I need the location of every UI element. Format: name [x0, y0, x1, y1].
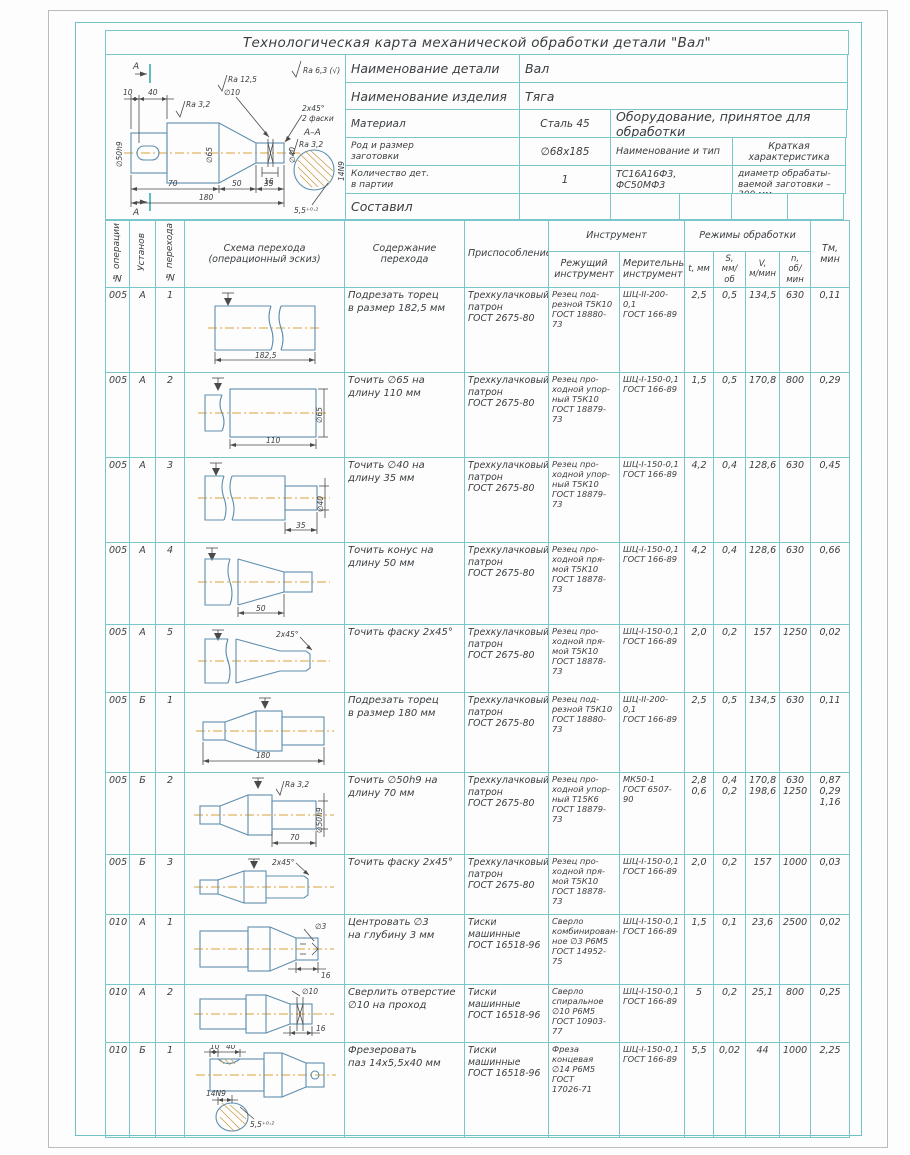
setup-cell: А	[130, 543, 156, 625]
part-drawing: А А 10 40	[105, 55, 345, 220]
setup-cell: А	[130, 458, 156, 543]
op-cell: 005	[106, 773, 130, 855]
t-cell: 5,5	[685, 1043, 714, 1138]
t-cell: 2,8 0,6	[685, 773, 714, 855]
qty-label: Количество дет. в партии	[345, 166, 520, 194]
s-cell: 0,1	[714, 915, 746, 985]
setup-cell: А	[130, 985, 156, 1043]
dim-35: 35	[264, 179, 274, 188]
roughness-ra32: Ra 3,2	[186, 100, 210, 109]
blank-label: Род и размер заготовки	[345, 138, 520, 166]
detail-name-label: Наименование детали	[345, 55, 520, 83]
process-row-6: 005 Б 1 180	[106, 693, 850, 773]
header-t: t, мм	[685, 251, 714, 287]
v-cell: 44	[746, 1043, 780, 1138]
product-name-label: Наименование изделия	[345, 83, 520, 110]
sketch-cell: 110 ∅65	[185, 373, 345, 458]
measuring-tool-cell: ШЦ-I-150-0,1 ГОСТ 166-89	[620, 373, 685, 458]
v-cell: 157	[746, 625, 780, 693]
op-cell: 005	[106, 458, 130, 543]
material-label: Материал	[345, 110, 520, 138]
t-cell: 2,5	[685, 693, 714, 773]
cutting-tool-cell: Резец под- резной Т5К10 ГОСТ 18880- 73	[549, 693, 620, 773]
process-row-8: 005 Б 3 2х45° Точить фаску 2х45°	[106, 855, 850, 915]
n-cell: 630	[780, 693, 811, 773]
sketch-dim: 16	[321, 971, 331, 980]
sketch-cell: 50	[185, 543, 345, 625]
cutting-tool-cell: Резец под- резной Т5К10 ГОСТ 18880- 73	[549, 288, 620, 373]
header-n: n, об/мин	[780, 251, 811, 287]
detail-name-value: Вал	[519, 55, 848, 83]
measuring-tool-cell: МК50-1 ГОСТ 6507-90	[620, 773, 685, 855]
content-cell: Точить ∅40 на длину 35 мм	[345, 458, 465, 543]
process-row-4: 005 А 4 50	[106, 543, 850, 625]
step-cell: 3	[156, 458, 185, 543]
sketch-slot-width: 14N9	[206, 1089, 226, 1098]
cutting-tool-cell: Резец про- ходной упор- ный Т5К10 ГОСТ 1…	[549, 373, 620, 458]
v-cell: 134,5	[746, 693, 780, 773]
sketch-cell: ∅3 16	[185, 915, 345, 985]
tm-cell: 0,66	[811, 543, 850, 625]
n-cell: 630	[780, 288, 811, 373]
tm-cell: 0,11	[811, 693, 850, 773]
author-empty-4	[731, 194, 788, 220]
cutting-tool-cell: Резец про- ходной пря- мой Т5К10 ГОСТ 18…	[549, 543, 620, 625]
sketch-dim: 70	[290, 833, 300, 842]
step-cell: 2	[156, 985, 185, 1043]
dia-65: ∅65	[205, 147, 214, 163]
v-cell: 157	[746, 855, 780, 915]
s-cell: 0,02	[714, 1043, 746, 1138]
setup-cell: Б	[130, 693, 156, 773]
tm-cell: 0,02	[811, 625, 850, 693]
tm-cell: 0,02	[811, 915, 850, 985]
tm-cell: 0,87 0,29 1,16	[811, 773, 850, 855]
content-cell: Центровать ∅3 на глубину 3 мм	[345, 915, 465, 985]
op-cell: 005	[106, 543, 130, 625]
t-cell: 2,0	[685, 625, 714, 693]
step-cell: 1	[156, 693, 185, 773]
fixture-cell: Тиски машинные ГОСТ 16518-96	[465, 915, 549, 985]
header-fixture: Приспособление	[465, 221, 549, 288]
header-sketch: Схема перехода (операционный эскиз)	[185, 221, 345, 288]
dia-50h9: ∅50h9	[115, 141, 124, 167]
t-cell: 2,5	[685, 288, 714, 373]
sketch-dim-a: 10	[210, 1045, 220, 1051]
step-cell: 4	[156, 543, 185, 625]
process-row-11: 010 Б 1 1	[106, 1043, 850, 1138]
header-measuring-tool: Мерительный инструмент	[620, 251, 685, 287]
step-cell: 1	[156, 288, 185, 373]
measuring-tool-cell: ШЦ-I-150-0,1 ГОСТ 166-89	[620, 543, 685, 625]
header-tm: Тм, мин	[811, 221, 850, 288]
equipment-header: Оборудование, принятое для обработки	[610, 110, 847, 138]
header-content: Содержание перехода	[345, 221, 465, 288]
s-cell: 0,2	[714, 855, 746, 915]
tm-cell: 2,25	[811, 1043, 850, 1138]
process-table: № операции Установ № перехода Схема пере…	[105, 220, 850, 1138]
sketch-cell: 182,5	[185, 288, 345, 373]
roughness-ra63: Ra 6,3 (√)	[303, 66, 340, 75]
process-row-1: 005 А 1 182,5	[106, 288, 850, 373]
step-cell: 2	[156, 773, 185, 855]
op-cell: 010	[106, 915, 130, 985]
fixture-cell: Тиски машинные ГОСТ 16518-96	[465, 1043, 549, 1138]
fixture-cell: Трехкулачковый патрон ГОСТ 2675-80	[465, 625, 549, 693]
machines-value: ТС16А16Ф3, ФС50МФ3	[610, 166, 733, 194]
tm-cell: 0,03	[811, 855, 850, 915]
s-cell: 0,4 0,2	[714, 773, 746, 855]
page-title: Технологическая карта механической обраб…	[105, 30, 849, 55]
t-cell: 5	[685, 985, 714, 1043]
n-cell: 1000	[780, 855, 811, 915]
chamfer-label: 2х45°	[302, 104, 325, 113]
sketch-dim: 16	[316, 1024, 326, 1033]
hole-dia-label: ∅10	[224, 88, 240, 97]
sketch-cell: ∅10 16	[185, 985, 345, 1043]
fixture-cell: Трехкулачковый патрон ГОСТ 2675-80	[465, 458, 549, 543]
t-cell: 4,2	[685, 543, 714, 625]
author-empty-3	[679, 194, 732, 220]
author-label: Составил	[345, 194, 520, 220]
tm-cell: 0,11	[811, 288, 850, 373]
header-s: S, мм/об	[714, 251, 746, 287]
header-cutting-tool: Режущий инструмент	[549, 251, 620, 287]
content-cell: Подрезать торец в размер 182,5 мм	[345, 288, 465, 373]
process-card-page: Технологическая карта механической обраб…	[0, 0, 910, 1155]
s-cell: 0,5	[714, 693, 746, 773]
v-cell: 170,8 198,6	[746, 773, 780, 855]
sketch-cell: 2х45°	[185, 625, 345, 693]
fixture-cell: Трехкулачковый патрон ГОСТ 2675-80	[465, 543, 549, 625]
op-cell: 005	[106, 373, 130, 458]
dim-70: 70	[168, 179, 178, 188]
v-cell: 23,6	[746, 915, 780, 985]
measuring-tool-cell: ШЦ-II-200-0,1 ГОСТ 166-89	[620, 288, 685, 373]
setup-cell: Б	[130, 773, 156, 855]
process-row-2: 005 А 2 110	[106, 373, 850, 458]
fixture-cell: Трехкулачковый патрон ГОСТ 2675-80	[465, 773, 549, 855]
roughness-ra125: Ra 12,5	[228, 75, 257, 84]
content-cell: Точить ∅65 на длину 110 мм	[345, 373, 465, 458]
blank-value: ∅68х185	[519, 138, 611, 166]
fixture-cell: Тиски машинные ГОСТ 16518-96	[465, 985, 549, 1043]
measuring-tool-cell: ШЦ-I-150-0,1 ГОСТ 166-89	[620, 855, 685, 915]
dim-180: 180	[199, 193, 214, 202]
setup-cell: А	[130, 915, 156, 985]
cutting-tool-cell: Фреза концевая ∅14 Р6М5 ГОСТ 17026-71	[549, 1043, 620, 1138]
n-cell: 1250	[780, 625, 811, 693]
sketch-dia: ∅65	[315, 407, 324, 423]
header-tool: Инструмент	[549, 221, 685, 252]
step-cell: 3	[156, 855, 185, 915]
process-row-10: 010 А 2 ∅10	[106, 985, 850, 1043]
op-cell: 005	[106, 693, 130, 773]
measuring-tool-cell: ШЦ-I-150-0,1 ГОСТ 166-89	[620, 915, 685, 985]
step-cell: 1	[156, 1043, 185, 1138]
cutting-tool-cell: Резец про- ходной упор- ный Т5К10 ГОСТ 1…	[549, 458, 620, 543]
dim-40: 40	[148, 88, 158, 97]
sketch-dia: ∅3	[315, 922, 327, 931]
measuring-tool-cell: ШЦ-II-200-0,1 ГОСТ 166-89	[620, 693, 685, 773]
type-label: Наименование и тип	[610, 138, 733, 166]
tm-cell: 0,29	[811, 373, 850, 458]
s-cell: 0,2	[714, 985, 746, 1043]
material-value: Сталь 45	[519, 110, 611, 138]
sketch-dia: ∅40	[316, 496, 325, 512]
fixture-cell: Трехкулачковый патрон ГОСТ 2675-80	[465, 693, 549, 773]
measuring-tool-cell: ШЦ-I-150-0,1 ГОСТ 166-89	[620, 458, 685, 543]
fixture-cell: Трехкулачковый патрон ГОСТ 2675-80	[465, 855, 549, 915]
info-table: Наименование детали Вал Наименование изд…	[345, 55, 849, 220]
n-cell: 630	[780, 458, 811, 543]
header-modes: Режимы обработки	[685, 221, 811, 252]
tm-cell: 0,45	[811, 458, 850, 543]
cutting-tool-cell: Сверло комбинирован- ное ∅3 Р6М5 ГОСТ 14…	[549, 915, 620, 985]
sketch-dim: 50	[256, 604, 266, 613]
n-cell: 2500	[780, 915, 811, 985]
op-cell: 005	[106, 855, 130, 915]
header-step: № перехода	[156, 221, 185, 288]
sketch-ra: Ra 3,2	[285, 780, 309, 789]
author-empty-5	[787, 194, 844, 220]
n-cell: 800	[780, 373, 811, 458]
setup-cell: Б	[130, 855, 156, 915]
v-cell: 128,6	[746, 458, 780, 543]
sketch-cell: 180	[185, 693, 345, 773]
measuring-tool-cell: ШЦ-I-150-0,1 ГОСТ 166-89	[620, 1043, 685, 1138]
process-row-7: 005 Б 2 Ra 3,2 ∅50h9	[106, 773, 850, 855]
op-cell: 010	[106, 985, 130, 1043]
section-mark-a-bottom: А	[132, 208, 139, 218]
sketch-cell: 10 40 14N9 5,5⁺⁰·²	[185, 1043, 345, 1138]
author-empty-1	[519, 194, 611, 220]
setup-cell: Б	[130, 1043, 156, 1138]
op-cell: 010	[106, 1043, 130, 1138]
v-cell: 170,8	[746, 373, 780, 458]
t-cell: 4,2	[685, 458, 714, 543]
n-cell: 630 1250	[780, 773, 811, 855]
process-row-9: 010 А 1 ∅3	[106, 915, 850, 985]
dim-50: 50	[232, 179, 242, 188]
content-cell: Подрезать торец в размер 180 мм	[345, 693, 465, 773]
content-cell: Точить ∅50h9 на длину 70 мм	[345, 773, 465, 855]
fixture-cell: Трехкулачковый патрон ГОСТ 2675-80	[465, 373, 549, 458]
v-cell: 128,6	[746, 543, 780, 625]
t-cell: 2,0	[685, 855, 714, 915]
header-v: V, м/мин	[746, 251, 780, 287]
header-setup: Установ	[130, 221, 156, 288]
sketch-cell: 2х45°	[185, 855, 345, 915]
sketch-dim: 110	[266, 436, 281, 445]
fixture-cell: Трехкулачковый патрон ГОСТ 2675-80	[465, 288, 549, 373]
char-label: Краткая характеристика	[732, 138, 846, 166]
product-name-value: Тяга	[519, 83, 848, 110]
step-cell: 1	[156, 915, 185, 985]
s-cell: 0,5	[714, 288, 746, 373]
slot-depth-label: 5,5⁺⁰·²	[294, 206, 318, 215]
measuring-tool-cell: ШЦ-I-150-0,1 ГОСТ 166-89	[620, 625, 685, 693]
sketch-dim: 180	[256, 751, 271, 760]
sketch-cell: 35 ∅40	[185, 458, 345, 543]
measuring-tool-cell: ШЦ-I-150-0,1 ГОСТ 166-89	[620, 985, 685, 1043]
content-cell: Фрезеровать паз 14х5,5х40 мм	[345, 1043, 465, 1138]
setup-cell: А	[130, 373, 156, 458]
content-cell: Точить фаску 2х45°	[345, 855, 465, 915]
header-op: № операции	[106, 221, 130, 288]
s-cell: 0,4	[714, 458, 746, 543]
cutting-tool-cell: Резец про- ходной упор- ный Т15К6 ГОСТ 1…	[549, 773, 620, 855]
sketch-dim: 182,5	[255, 351, 277, 360]
step-cell: 5	[156, 625, 185, 693]
content-cell: Точить конус на длину 50 мм	[345, 543, 465, 625]
s-cell: 0,2	[714, 625, 746, 693]
v-cell: 25,1	[746, 985, 780, 1043]
content-cell: Точить фаску 2х45°	[345, 625, 465, 693]
cutting-tool-cell: Резец про- ходной пря- мой Т5К10 ГОСТ 18…	[549, 855, 620, 915]
step-cell: 2	[156, 373, 185, 458]
t-cell: 1,5	[685, 915, 714, 985]
section-mark-a-top: А	[132, 62, 139, 72]
roughness-aa-ra32: Ra 3,2	[299, 140, 323, 149]
sketch-dim-b: 40	[226, 1045, 236, 1051]
section-aa-label: А–А	[303, 128, 321, 138]
characteristic-value: Наибольший диаметр обрабаты- ваемой заго…	[732, 166, 846, 194]
n-cell: 1000	[780, 1043, 811, 1138]
sketch-slot-depth: 5,5⁺⁰·²	[250, 1120, 274, 1129]
cutting-tool-cell: Резец про- ходной пря- мой Т5К10 ГОСТ 18…	[549, 625, 620, 693]
chamfer-count-label: 2 фаски	[302, 114, 334, 123]
sketch-dim: 35	[296, 521, 306, 530]
dim-10: 10	[123, 88, 133, 97]
sketch-dia: ∅50h9	[315, 807, 324, 833]
author-empty-2	[610, 194, 680, 220]
process-row-5: 005 А 5 2х45° Точить	[106, 625, 850, 693]
n-cell: 630	[780, 543, 811, 625]
sketch-cell: Ra 3,2 ∅50h9 70	[185, 773, 345, 855]
tm-cell: 0,25	[811, 985, 850, 1043]
op-cell: 005	[106, 288, 130, 373]
cutting-tool-cell: Сверло спиральное ∅10 Р6М5 ГОСТ 10903- 7…	[549, 985, 620, 1043]
setup-cell: А	[130, 625, 156, 693]
s-cell: 0,4	[714, 543, 746, 625]
qty-value: 1	[519, 166, 611, 194]
op-cell: 005	[106, 625, 130, 693]
content-cell: Сверлить отверстие ∅10 на проход	[345, 985, 465, 1043]
sketch-dim: 2х45°	[276, 630, 299, 639]
sketch-dim: 2х45°	[272, 858, 295, 867]
n-cell: 800	[780, 985, 811, 1043]
t-cell: 1,5	[685, 373, 714, 458]
s-cell: 0,5	[714, 373, 746, 458]
v-cell: 134,5	[746, 288, 780, 373]
sketch-dia: ∅10	[302, 987, 318, 996]
process-row-3: 005 А 3 35	[106, 458, 850, 543]
setup-cell: А	[130, 288, 156, 373]
part-drawing-svg: А А 10 40	[106, 55, 346, 220]
